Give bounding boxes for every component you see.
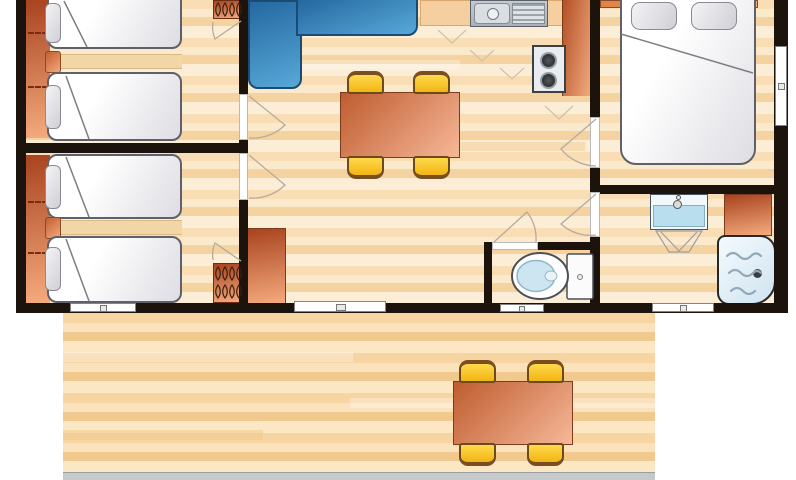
pillow [691,2,737,30]
terrace-front-edge [63,472,655,480]
door-opening-bathroom [590,192,600,237]
bedside-shelf [50,54,182,69]
tall-kitchen-counter [562,0,592,96]
bathtub [717,235,776,305]
pillow [45,247,61,291]
window-bedroom2 [70,303,136,312]
door-opening-bedroom3 [590,117,600,168]
single-bed [47,72,182,141]
burner [540,52,557,69]
sink-drainer [512,3,545,24]
dining-table [340,92,460,158]
pillow [45,85,61,129]
door-handle [336,304,346,311]
bathroom-cabinet [724,194,772,236]
terrace-table [453,381,573,445]
bedroom3-bathroom-wall [590,185,776,194]
dining-chair [413,156,450,179]
single-bed [47,0,182,49]
sideboard-cabinet [246,228,286,305]
wc-left-wall [484,242,492,303]
door-opening-wc [492,242,538,250]
window-handle [519,306,525,312]
pillow [45,165,61,209]
window-handle [100,305,107,312]
dining-chair [413,71,450,94]
pillow [631,2,677,30]
window-handle [778,83,785,90]
corner-sofa [296,0,418,36]
faucet-knob [676,195,681,200]
pillow [45,3,61,43]
burner [540,72,557,89]
exterior-wall-left [16,0,26,313]
terrace-plank-shade [63,430,263,440]
door-opening-bedroom1 [239,94,248,140]
window-right-wall [775,46,787,126]
terrace-chair [459,360,496,383]
window-wc [500,304,544,312]
terrace-chair [527,360,564,383]
window-handle [680,305,687,312]
sliding-bay-door [294,301,386,312]
door-opening-bedroom2 [239,153,248,200]
dining-chair [347,156,384,179]
floor-plan [0,0,796,480]
terrace-chair [527,443,564,466]
single-bed [47,154,182,219]
terrace-chair [459,443,496,466]
bathtub-drain [753,269,762,278]
window-bathroom [652,303,714,312]
bedside-shelf [50,220,182,235]
terrace-plank-highlight [63,352,353,362]
sink-drain [487,8,499,20]
dining-chair [347,71,384,94]
bedside-cabinet [45,51,61,73]
bedrooms-divider-wall [16,143,248,153]
corner-sofa-chaise [248,0,302,89]
faucet [673,200,682,209]
single-bed [47,236,182,303]
